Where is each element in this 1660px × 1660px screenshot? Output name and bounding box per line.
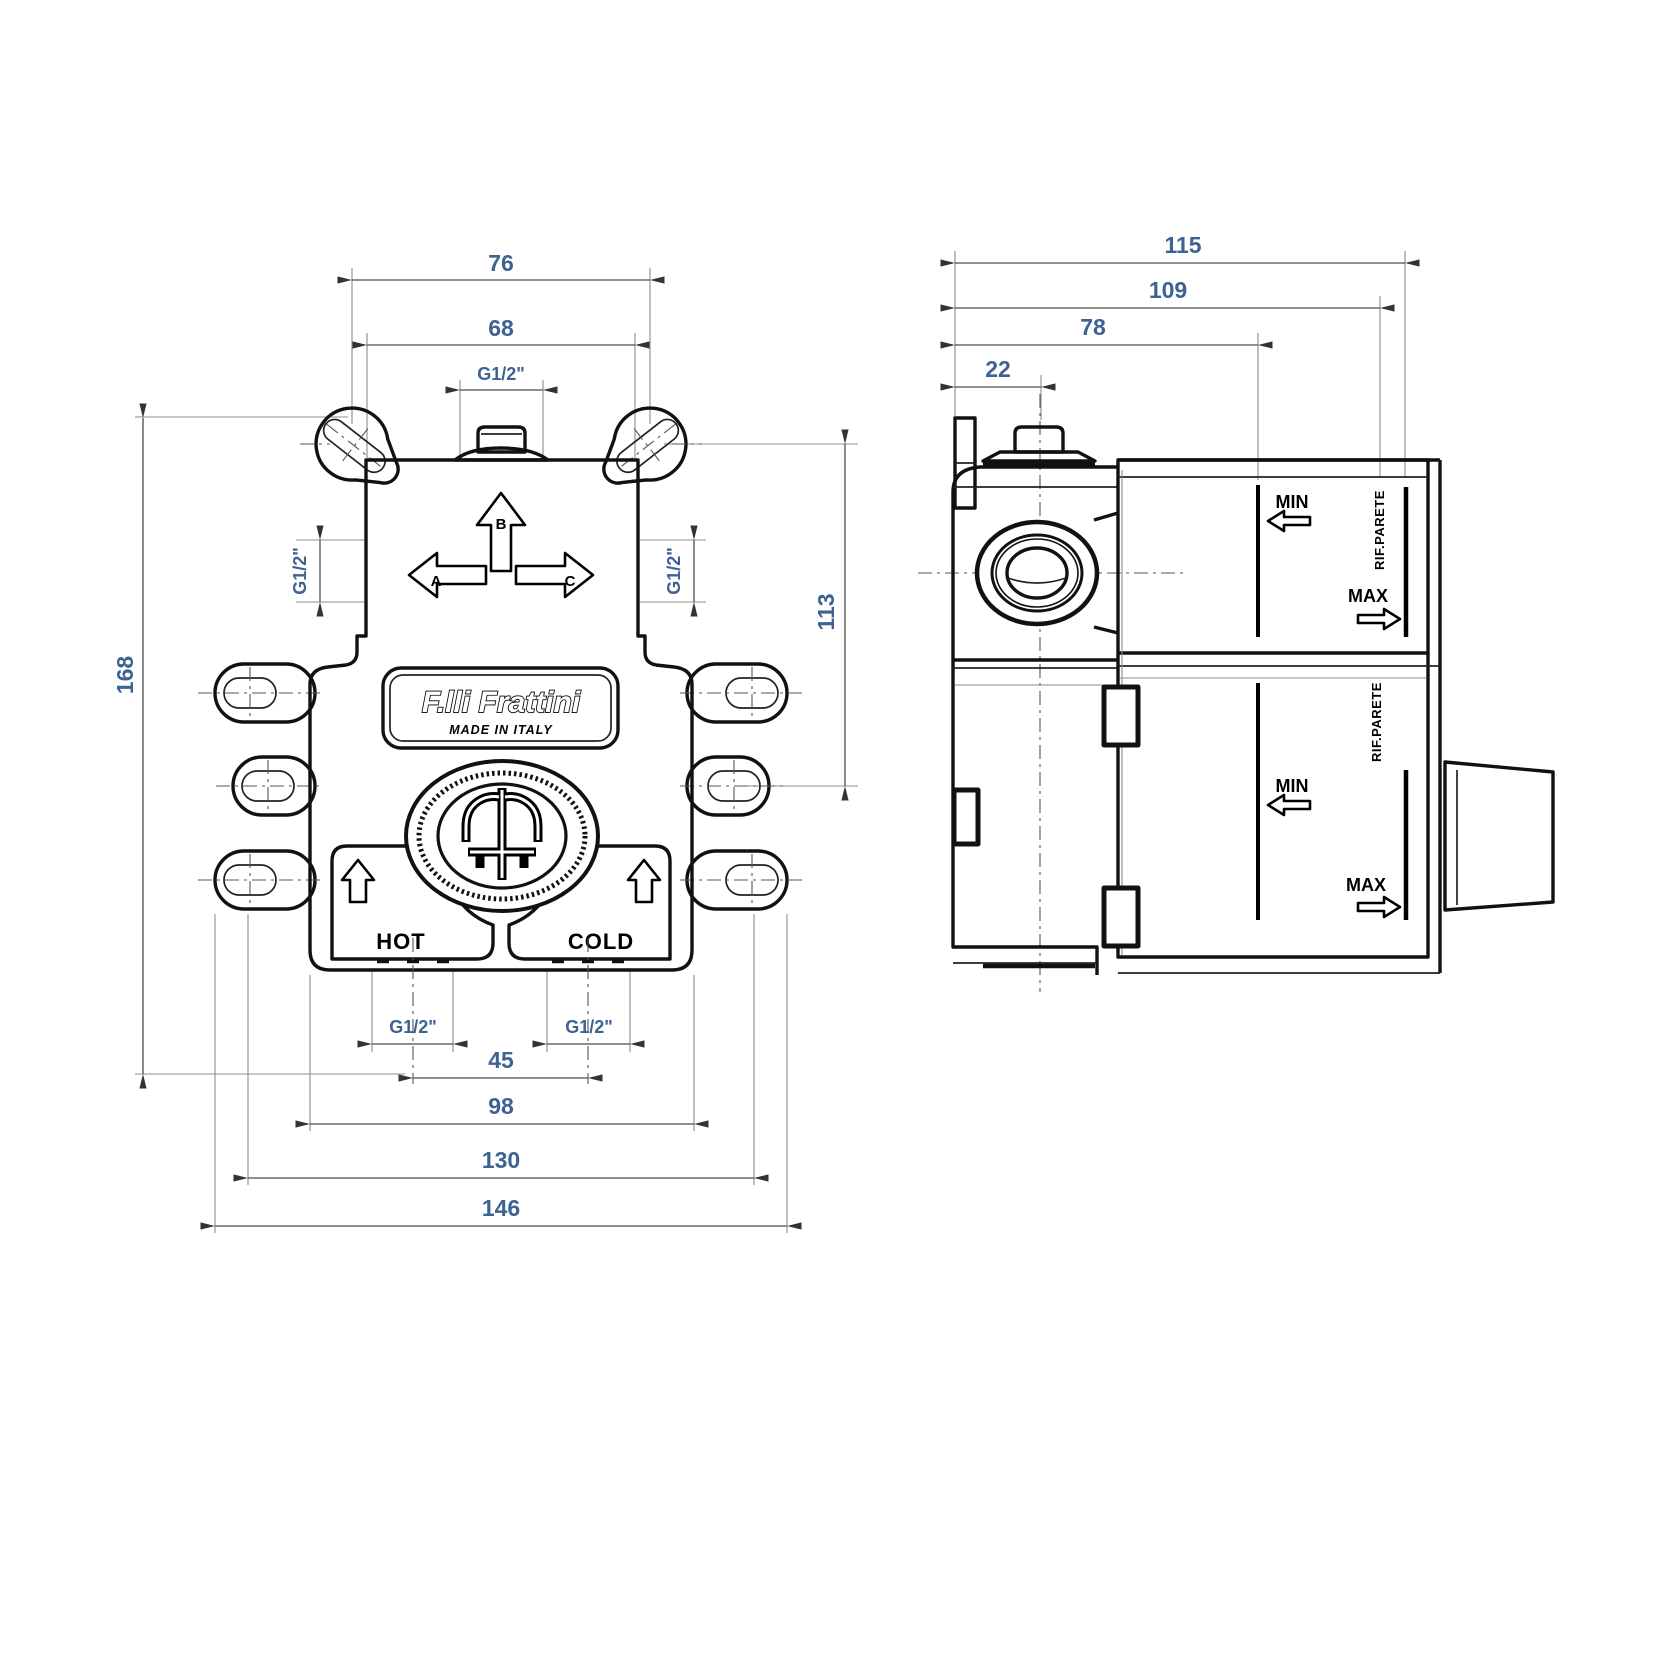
max-upper-arrow-icon [1358, 609, 1400, 629]
drawing-canvas: F.lli Frattini MADE IN ITALY HOT COLD [0, 0, 1660, 1660]
wall-bracket-plate [955, 418, 975, 508]
min-lower-arrow-icon [1268, 795, 1310, 815]
dim-78: 78 [1080, 314, 1106, 340]
brand-name: F.lli Frattini [422, 686, 581, 719]
hot-flow-arrow-icon [342, 860, 374, 902]
brand-plate: F.lli Frattini MADE IN ITALY [383, 668, 618, 748]
side-body-profile [953, 427, 1118, 975]
brand-logo-medallion [406, 761, 598, 911]
dim-68: 68 [488, 315, 514, 341]
dim-113: 113 [813, 593, 839, 630]
outlet-c-label: C [565, 573, 576, 590]
technical-drawing-page: F.lli Frattini MADE IN ITALY HOT COLD [0, 0, 1660, 1660]
min-upper-label: MIN [1276, 492, 1309, 512]
dim-76: 76 [488, 250, 514, 276]
min-upper-arrow-icon [1268, 511, 1310, 531]
hot-label: HOT [376, 929, 425, 954]
outlet-a-label: A [431, 573, 442, 590]
wall-ref-upper-text: RIF.PARETE [1372, 490, 1387, 570]
dim-146: 146 [482, 1195, 520, 1221]
plaster-depth-lower: RIF.PARETE MIN MAX [1258, 682, 1406, 920]
dim-98: 98 [488, 1093, 514, 1119]
min-lower-label: MIN [1276, 776, 1309, 796]
dim-22: 22 [985, 356, 1011, 382]
front-dimensions: 76 68 G1/2" 168 113 G1/2" G1/2" G1/2" G1… [112, 250, 845, 1226]
dim-115: 115 [1164, 232, 1201, 258]
front-extension-lines [135, 268, 858, 1233]
made-in-italy: MADE IN ITALY [449, 723, 553, 737]
cold-flow-arrow-icon [628, 860, 660, 902]
dim-45: 45 [488, 1047, 514, 1073]
wall-ref-lower-text: RIF.PARETE [1369, 682, 1384, 762]
max-lower-arrow-icon [1358, 897, 1400, 917]
dim-109: 109 [1149, 277, 1187, 303]
mounting-ear-top-right [585, 394, 701, 507]
outlet-c-arrow-icon [516, 553, 593, 597]
dim-g12-hot: G1/2" [389, 1017, 437, 1037]
plaster-depth-upper: MIN RIF.PARETE MAX [1258, 485, 1406, 637]
dim-g12-cold: G1/2" [565, 1017, 613, 1037]
front-view: F.lli Frattini MADE IN ITALY HOT COLD [112, 250, 858, 1233]
side-view: MIN RIF.PARETE MAX RIF.PARETE MIN MAX 11… [918, 232, 1553, 992]
top-port [455, 427, 548, 460]
dim-g12-right: G1/2" [664, 547, 684, 595]
dim-g12-left: G1/2" [290, 547, 310, 595]
outlet-a-arrow-icon [409, 553, 486, 597]
cold-label: COLD [568, 929, 634, 954]
mounting-ear-top-left [302, 394, 418, 507]
dim-168: 168 [112, 656, 138, 695]
outlet-b-label: B [496, 516, 507, 533]
outlet-arrows: B A C [409, 493, 593, 597]
max-upper-label: MAX [1348, 586, 1388, 606]
dim-130: 130 [482, 1147, 520, 1173]
max-lower-label: MAX [1346, 875, 1386, 895]
side-dimensions: 115 109 78 22 [955, 232, 1405, 387]
dim-g12-top: G1/2" [477, 364, 525, 384]
cartridge-stub [1445, 762, 1553, 910]
